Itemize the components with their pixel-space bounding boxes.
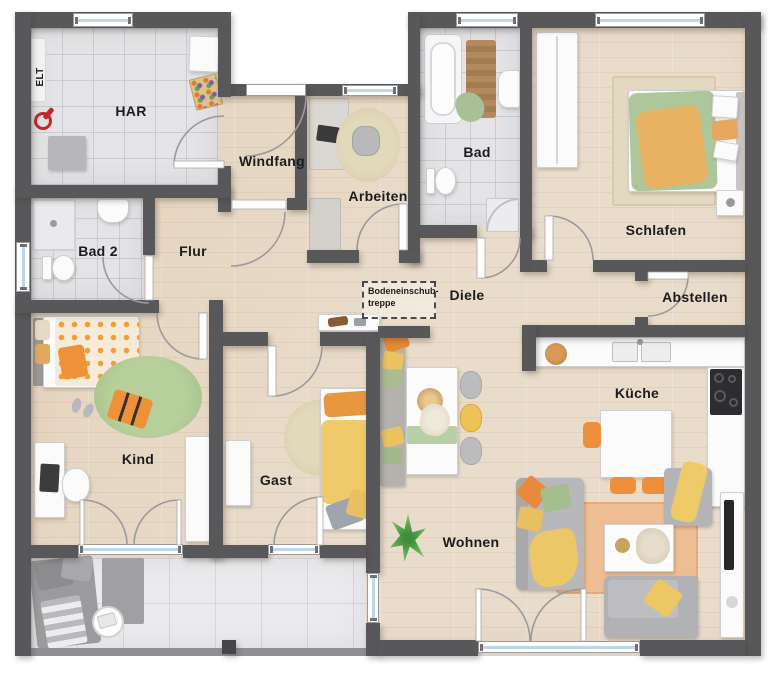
wall bbox=[745, 12, 761, 656]
wall bbox=[640, 640, 745, 656]
blanket-orange bbox=[635, 104, 709, 190]
burner-3 bbox=[714, 390, 726, 402]
wall bbox=[143, 198, 155, 255]
gast-wardrobe bbox=[225, 440, 251, 506]
shower-drain bbox=[50, 220, 57, 227]
kind-laptop bbox=[39, 464, 59, 493]
entrance-recess bbox=[231, 0, 420, 84]
sideboard-decor bbox=[726, 596, 738, 608]
room-label-elt: ELT bbox=[36, 67, 46, 86]
bench-pillow-yellow bbox=[382, 350, 405, 371]
wall bbox=[378, 640, 478, 656]
window bbox=[595, 13, 705, 27]
window bbox=[73, 13, 133, 27]
wall bbox=[307, 250, 359, 263]
terrace-door-sill bbox=[268, 544, 320, 555]
tv bbox=[724, 500, 734, 570]
coffee-table-plant bbox=[636, 528, 670, 564]
storage-box bbox=[48, 136, 86, 170]
kind-blanket-fold bbox=[57, 344, 88, 380]
wall bbox=[320, 545, 366, 558]
room-label-bad: Bad bbox=[463, 145, 490, 159]
wall bbox=[183, 545, 268, 558]
kitchen-sink-basin bbox=[612, 342, 638, 362]
dining-chair-yellow bbox=[460, 404, 482, 432]
fruit-bowl bbox=[545, 343, 567, 365]
kind-rug-green bbox=[94, 356, 202, 438]
wall bbox=[287, 198, 307, 210]
terrace-door-sill bbox=[478, 641, 640, 653]
kitchen-chair-orange bbox=[583, 422, 601, 448]
wall bbox=[532, 260, 547, 272]
bad-toilet-bowl bbox=[435, 167, 456, 195]
room-label-har: HAR bbox=[115, 104, 146, 118]
window bbox=[456, 13, 518, 27]
room-label-gast: Gast bbox=[260, 473, 292, 487]
bad-toilet-tank bbox=[426, 168, 435, 194]
room-label-bad2: Bad 2 bbox=[78, 244, 118, 258]
window bbox=[367, 573, 379, 623]
wall bbox=[209, 300, 223, 558]
kitchen-chair-orange-2 bbox=[610, 477, 636, 494]
wall bbox=[520, 28, 532, 272]
room-label-wohnen: Wohnen bbox=[443, 535, 500, 549]
terrace-post bbox=[222, 640, 236, 654]
bench-pillow-green bbox=[381, 369, 403, 389]
room-label-kueche: Küche bbox=[615, 386, 659, 400]
nightstand-knob bbox=[726, 198, 735, 207]
kitchen-faucet bbox=[637, 339, 643, 345]
striped-towel bbox=[40, 595, 88, 649]
kind-pillow-orange bbox=[35, 344, 50, 364]
kitchen-sink-basin-2 bbox=[641, 342, 671, 362]
wall bbox=[15, 300, 159, 313]
wall bbox=[15, 185, 231, 198]
room-label-kind: Kind bbox=[122, 452, 154, 466]
wall bbox=[593, 260, 745, 272]
room-label-windfang: Windfang bbox=[239, 154, 305, 168]
dining-chair-gray bbox=[460, 371, 482, 399]
kind-pillow bbox=[35, 320, 50, 340]
lounger-pillow-2 bbox=[60, 554, 93, 582]
wall bbox=[223, 332, 268, 346]
wardrobe-handle bbox=[556, 36, 558, 164]
wall bbox=[218, 28, 231, 97]
desk-chair bbox=[352, 126, 380, 156]
sofa-pillow-yellow bbox=[516, 506, 544, 533]
room-label-abstellen: Abstellen bbox=[662, 290, 728, 304]
terrace-edge bbox=[31, 648, 366, 656]
burner bbox=[714, 373, 724, 383]
window bbox=[342, 85, 398, 96]
wall bbox=[635, 272, 648, 281]
window bbox=[16, 242, 30, 292]
wall bbox=[408, 12, 420, 263]
cabinet bbox=[309, 198, 341, 252]
pillow-2 bbox=[713, 140, 740, 162]
bathtub-inner bbox=[430, 42, 456, 116]
wall bbox=[399, 250, 420, 263]
hall-decor bbox=[354, 318, 366, 326]
attic-ladder-annotation: Bodeneinschub- treppe bbox=[362, 281, 436, 319]
wall bbox=[295, 84, 307, 198]
wall bbox=[366, 332, 380, 573]
kitchen-table bbox=[600, 410, 672, 478]
bad-sink bbox=[498, 70, 520, 108]
bathroom-sink bbox=[97, 199, 129, 223]
burner-2 bbox=[728, 375, 736, 383]
toilet-tank bbox=[42, 256, 52, 280]
washing-machine bbox=[188, 35, 219, 72]
wall bbox=[522, 325, 536, 371]
room-label-flur: Flur bbox=[179, 244, 207, 258]
wall bbox=[420, 225, 477, 238]
annotation-line1: Bodeneinschub- bbox=[368, 286, 439, 296]
annotation-line2: treppe bbox=[368, 298, 396, 308]
room-label-arbeiten: Arbeiten bbox=[348, 189, 407, 203]
bench-pillow-green-2 bbox=[382, 447, 403, 465]
wall bbox=[522, 325, 745, 337]
toilet-bowl bbox=[52, 255, 75, 281]
terrace-door-sill bbox=[78, 544, 183, 555]
kind-chair bbox=[62, 468, 90, 502]
wall bbox=[15, 12, 31, 656]
coffee-table-tray bbox=[615, 538, 630, 553]
floor-plan: ELT HAR Windfang Arbeiten Bad Schlafen B… bbox=[0, 0, 775, 673]
pillow bbox=[711, 95, 738, 119]
burner-4 bbox=[729, 398, 738, 407]
room-label-schlafen: Schlafen bbox=[626, 223, 687, 237]
wall bbox=[378, 326, 430, 338]
kind-wardrobe bbox=[185, 436, 210, 542]
entrance-door bbox=[246, 84, 306, 96]
pillow-orange bbox=[711, 119, 739, 142]
shower-tray bbox=[486, 198, 519, 232]
room-label-diele: Diele bbox=[450, 288, 485, 302]
wall bbox=[31, 545, 78, 558]
dining-chair-gray-2 bbox=[460, 437, 482, 465]
